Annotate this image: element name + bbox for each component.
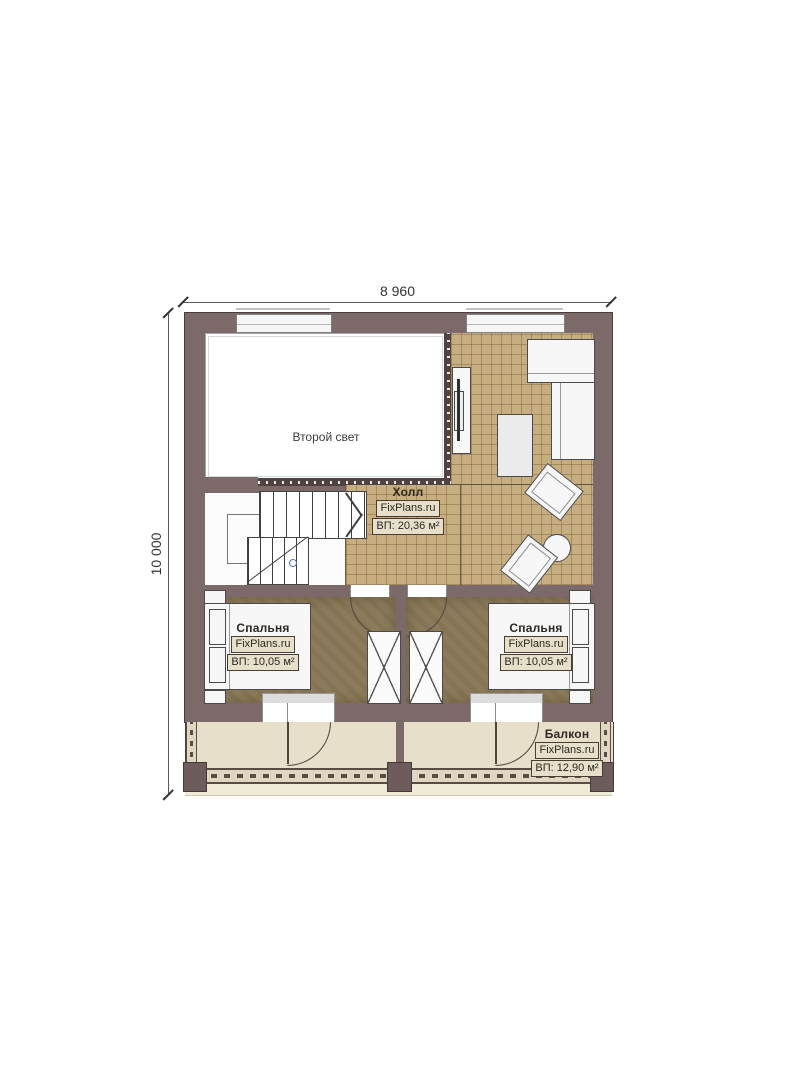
wall-stub — [185, 477, 258, 493]
area-label: ВП: 10,05 м² — [227, 654, 298, 671]
room-label-hall: Холл FixPlans.ru ВП: 20,36 м² — [357, 486, 459, 535]
dimension-left-line — [168, 313, 169, 795]
window-top-right — [466, 314, 565, 333]
balcony-post — [387, 762, 412, 792]
tv-screen — [457, 379, 460, 441]
nightstand — [204, 590, 226, 604]
dimension-left-label: 10 000 — [148, 524, 164, 584]
window-sill — [466, 308, 563, 310]
area-label: ВП: 12,90 м² — [531, 760, 602, 777]
brand-label: FixPlans.ru — [535, 742, 598, 759]
sofa-chaise — [527, 339, 595, 383]
nightstand — [569, 590, 591, 604]
balcony-door-opening-right — [470, 703, 543, 722]
area-label: ВП: 20,36 м² — [372, 518, 443, 535]
window-top-left — [236, 314, 332, 333]
room-second-light — [205, 333, 446, 480]
room-label-bedroom-right: Спальня FixPlans.ru ВП: 10,05 м² — [484, 622, 588, 671]
coffee-table — [497, 414, 533, 477]
room-title: Холл — [393, 486, 424, 499]
floor-zone-line — [460, 485, 461, 585]
room-label-balcony: Балкон FixPlans.ru ВП: 12,90 м² — [526, 728, 608, 777]
area-label: ВП: 10,05 м² — [500, 654, 571, 671]
stair-direction-marker — [289, 559, 297, 567]
stair-flight-lower — [247, 537, 309, 585]
brand-label: FixPlans.ru — [231, 636, 294, 653]
balcony-door-leaf-right — [495, 722, 497, 764]
brand-label: FixPlans.ru — [376, 500, 439, 517]
room-title: Спальня — [236, 622, 289, 635]
door-opening-bedroom-left — [350, 585, 390, 597]
room-label-second-light: Второй свет — [266, 430, 386, 444]
room-title: Балкон — [545, 728, 590, 741]
window-sill — [236, 308, 330, 310]
brand-label: FixPlans.ru — [504, 636, 567, 653]
floor-plan: 8 960 10 000 — [0, 0, 792, 1080]
room-label-bedroom-left: Спальня FixPlans.ru ВП: 10,05 м² — [211, 622, 315, 671]
dimension-top-line — [183, 302, 612, 303]
balcony-door-opening-left — [262, 703, 335, 722]
nightstand — [569, 690, 591, 704]
door-opening-bedroom-right — [407, 585, 447, 597]
nightstand — [204, 690, 226, 704]
balcony-post — [183, 762, 207, 792]
dimension-top-label: 8 960 — [183, 283, 612, 299]
wardrobe — [409, 631, 443, 704]
wardrobe — [367, 631, 401, 704]
balcony-door-leaf-left — [287, 722, 289, 764]
room-title: Спальня — [509, 622, 562, 635]
